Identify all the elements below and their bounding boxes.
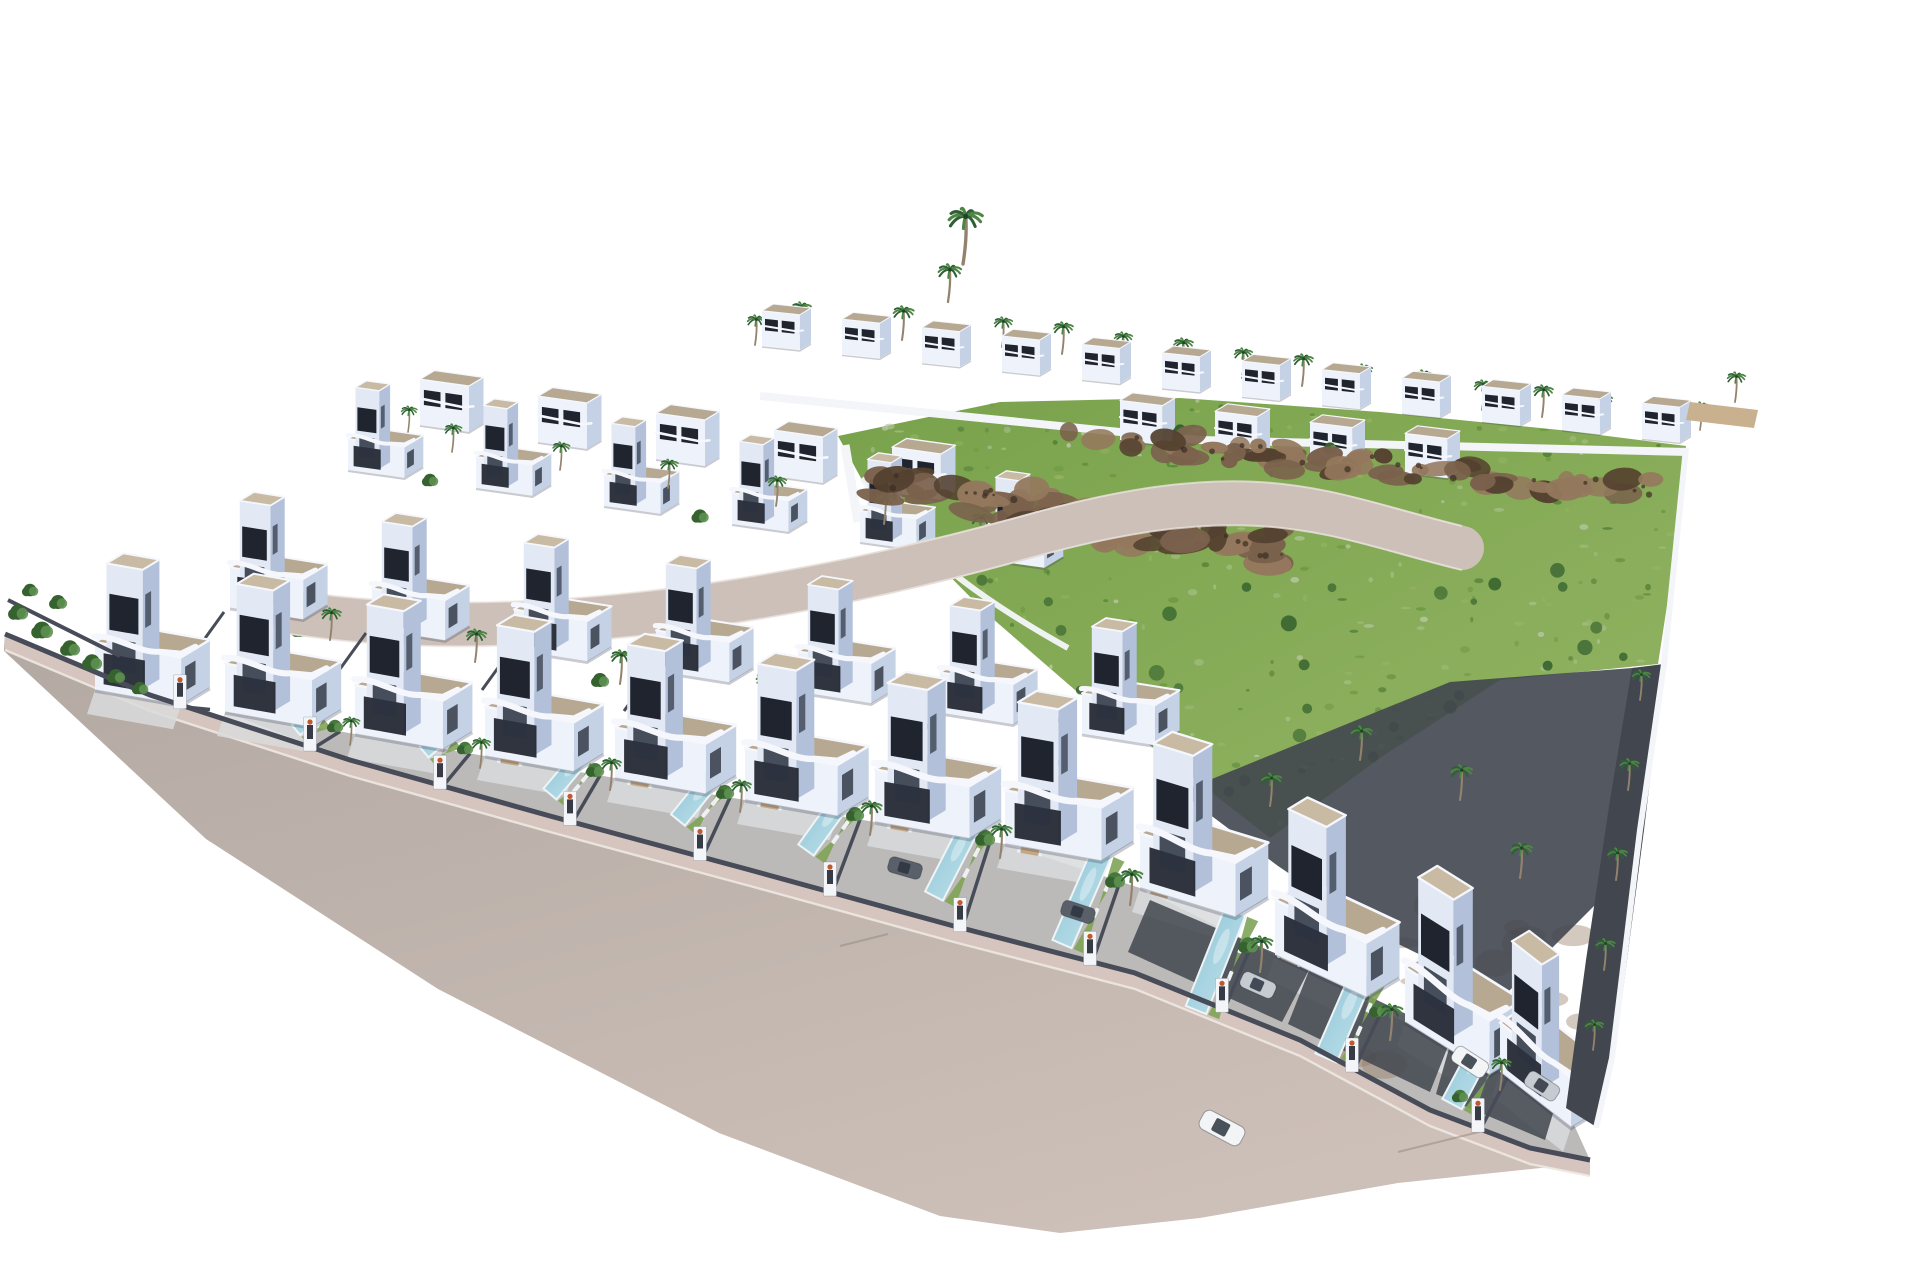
tower-side-window xyxy=(273,524,278,555)
tower-window xyxy=(1094,652,1119,686)
grass-speckle xyxy=(1654,528,1658,532)
shrub xyxy=(327,720,343,733)
shrub-foliage xyxy=(17,608,28,619)
palm-tree xyxy=(445,424,462,452)
palm-crown xyxy=(610,761,613,764)
palm-crown xyxy=(480,741,483,744)
palm-crown xyxy=(948,268,952,272)
gate-pillar xyxy=(694,827,707,861)
rock-speckle xyxy=(1299,460,1305,466)
grass-speckle xyxy=(1213,584,1216,589)
tower-side-window xyxy=(637,441,641,465)
shrub-foliage xyxy=(599,676,609,686)
palm-crown xyxy=(1302,357,1305,360)
tower-side-window xyxy=(537,654,543,692)
grass-speckle xyxy=(1539,429,1548,431)
grass-speckle xyxy=(1049,665,1052,670)
hillside-shrub xyxy=(1543,661,1553,671)
hillside-shrub xyxy=(1149,665,1165,681)
tower-side-window xyxy=(841,608,846,639)
grass-speckle xyxy=(1246,689,1250,692)
rock-speckle xyxy=(1646,492,1652,498)
palm-crown xyxy=(1520,846,1523,849)
grass-speckle xyxy=(1020,607,1025,614)
shrub-foliage xyxy=(91,658,102,669)
villa-window xyxy=(925,336,938,349)
grass-speckle xyxy=(1419,509,1422,513)
rock-speckle xyxy=(1010,496,1017,503)
gate-planter-flowers xyxy=(827,864,832,869)
grass-speckle xyxy=(1470,617,1473,623)
rock-speckle xyxy=(1395,462,1400,467)
tower-window xyxy=(613,443,632,469)
rock-speckle xyxy=(1641,485,1645,489)
gate-door xyxy=(567,799,573,813)
palm-crown xyxy=(1062,325,1065,328)
gate-door xyxy=(827,870,833,884)
grass-speckle xyxy=(1195,410,1200,413)
tower-window xyxy=(891,716,923,761)
grass-speckle xyxy=(1387,674,1396,679)
tower-side-window xyxy=(699,587,704,618)
grass-speckle xyxy=(1569,436,1576,442)
palm-crown xyxy=(560,445,563,448)
palm-crown xyxy=(1000,827,1003,830)
hillside-shrub xyxy=(1281,615,1297,631)
grass-speckle xyxy=(1047,571,1050,576)
rock-speckle xyxy=(1420,466,1423,469)
tower-window xyxy=(1021,736,1053,782)
rock-speckle xyxy=(988,488,993,493)
grass-speckle xyxy=(1350,691,1359,695)
palm-tree xyxy=(939,264,962,302)
grass-speckle xyxy=(1604,613,1610,620)
tower-side-window xyxy=(930,713,936,754)
tower-side-wall xyxy=(507,402,518,487)
grass-speckle xyxy=(1285,716,1290,721)
villa-window xyxy=(1085,353,1098,366)
palm-tree xyxy=(949,208,982,264)
hillside-shrub xyxy=(1619,652,1628,661)
gate-pillar xyxy=(1216,978,1229,1012)
tower-side-window xyxy=(1125,650,1130,681)
grass-speckle xyxy=(1001,448,1006,451)
tower-window xyxy=(242,526,267,560)
palm-crown xyxy=(755,318,758,321)
grass-speckle xyxy=(1653,566,1662,569)
grass-speckle xyxy=(963,466,973,471)
palm-crown xyxy=(870,804,873,807)
tower-side-window xyxy=(1061,733,1068,774)
hillside-shrub xyxy=(1328,583,1337,592)
gate-planter-flowers xyxy=(1219,981,1224,986)
gate-planter-flowers xyxy=(697,829,702,834)
shrub-foliage xyxy=(984,834,995,845)
grass-speckle xyxy=(1461,501,1468,506)
grass-speckle xyxy=(1344,680,1352,684)
grass-speckle xyxy=(995,578,998,582)
tower-side-wall xyxy=(1454,888,1473,1036)
grass-speckle xyxy=(1337,545,1347,549)
grass-speckle xyxy=(1514,621,1524,626)
grass-speckle xyxy=(1390,571,1394,577)
rock-speckle xyxy=(1370,454,1375,459)
grass-speckle xyxy=(1468,586,1473,592)
grass-speckle xyxy=(1321,543,1327,547)
rock-speckle xyxy=(982,493,987,498)
grass-speckle xyxy=(1529,602,1537,606)
tower-side-wall xyxy=(635,420,646,505)
grass-speckle xyxy=(1254,755,1259,757)
grass-speckle xyxy=(1457,485,1463,489)
grass-speckle xyxy=(1060,595,1070,599)
rock-speckle xyxy=(889,485,896,492)
grass-speckle xyxy=(1368,577,1373,582)
grass-speckle xyxy=(1645,584,1651,591)
grass-speckle xyxy=(1565,508,1569,512)
rock-speckle xyxy=(1344,466,1350,472)
grass-speckle xyxy=(1168,597,1178,603)
shrub-foliage xyxy=(29,587,38,596)
villa-window xyxy=(1565,403,1578,416)
grass-speckle xyxy=(987,446,992,449)
villa-window xyxy=(765,319,778,332)
grass-speckle xyxy=(1582,622,1588,626)
shrub-foliage xyxy=(41,626,53,638)
grass-speckle xyxy=(1382,662,1391,666)
grass-speckle xyxy=(1420,617,1428,622)
gate-door xyxy=(957,906,963,920)
gate-pillar xyxy=(954,898,967,932)
rock-speckle xyxy=(1221,457,1225,461)
gate-planter-flowers xyxy=(567,794,572,799)
palm-crown xyxy=(408,409,410,411)
rock xyxy=(1404,473,1422,484)
tower-window xyxy=(240,615,269,656)
hillside-shrub xyxy=(1044,597,1053,606)
grass-speckle xyxy=(1579,544,1589,548)
shrub xyxy=(457,742,473,755)
villa xyxy=(1562,388,1611,435)
palm-crown xyxy=(1616,851,1619,854)
tower-side-window xyxy=(668,674,674,713)
palm-tree xyxy=(402,406,417,432)
grass-speckle xyxy=(985,466,990,469)
grass-speckle xyxy=(1635,595,1644,599)
villa xyxy=(774,421,838,484)
grass-speckle xyxy=(1345,544,1350,548)
palm-crown xyxy=(902,309,905,312)
shrub-foliage xyxy=(334,723,343,732)
shrub xyxy=(49,595,67,609)
rock-speckle xyxy=(1257,553,1262,558)
villa xyxy=(1642,396,1691,443)
grass-speckle xyxy=(1461,599,1469,603)
grass-speckle xyxy=(1344,672,1353,675)
grass-speckle xyxy=(1053,440,1058,445)
palm-crown xyxy=(1542,388,1545,391)
tower-side-window xyxy=(415,545,420,576)
grass-speckle xyxy=(1237,527,1245,530)
villa-window xyxy=(1245,369,1258,382)
grass-speckle xyxy=(1460,646,1470,653)
grass-speckle xyxy=(1398,562,1402,566)
grass-speckle xyxy=(1574,660,1578,664)
grass-speckle xyxy=(1109,474,1116,478)
gate-planter-flowers xyxy=(1475,1101,1480,1106)
shrub xyxy=(60,640,80,655)
palm-crown xyxy=(668,462,671,465)
grass-speckle xyxy=(1659,547,1666,549)
grass-speckle xyxy=(1441,665,1449,670)
grass-speckle xyxy=(1054,475,1064,479)
grass-speckle xyxy=(1108,577,1111,580)
hillside-shrub xyxy=(1293,729,1306,742)
gate-pillar xyxy=(1084,931,1097,965)
tower-window xyxy=(761,697,792,741)
grass-speckle xyxy=(1378,687,1386,692)
grass-speckle xyxy=(1297,655,1303,660)
villa xyxy=(1162,346,1211,393)
palm-crown xyxy=(1735,375,1738,378)
grass-speckle xyxy=(957,427,964,432)
tower-window xyxy=(384,547,409,581)
tower-side-window xyxy=(381,405,385,429)
grass-speckle xyxy=(1114,599,1119,603)
grass-speckle xyxy=(1367,418,1373,422)
villa-window xyxy=(1005,344,1018,357)
grass-speckle xyxy=(985,428,989,433)
gate-door xyxy=(1087,939,1093,953)
hillside-shrub xyxy=(1302,704,1312,714)
villa xyxy=(1082,338,1131,385)
hillside-shrub xyxy=(976,575,987,586)
shrub-foliage xyxy=(69,644,80,655)
grass-speckle xyxy=(1409,587,1416,590)
gate-pillar xyxy=(564,791,577,825)
palm-tree xyxy=(1054,322,1073,354)
villa xyxy=(1482,380,1531,427)
grass-speckle xyxy=(1474,578,1483,583)
gate-door xyxy=(1349,1046,1355,1060)
grass-speckle xyxy=(1053,466,1063,472)
grass-speckle xyxy=(1364,624,1374,628)
shrub xyxy=(422,474,438,487)
tower-window xyxy=(109,594,138,635)
palm-crown xyxy=(475,633,478,636)
palm-tree xyxy=(553,442,570,470)
grass-speckle xyxy=(1545,603,1552,606)
grass-speckle xyxy=(1472,596,1475,599)
grass-speckle xyxy=(1416,607,1426,610)
hillside-shrub xyxy=(1162,606,1177,621)
villa-window xyxy=(845,327,858,340)
grass-speckle xyxy=(1441,500,1445,503)
hillside-shrub xyxy=(1558,582,1568,592)
tower-side-wall xyxy=(1327,815,1346,965)
gate-pillar xyxy=(1472,1098,1485,1132)
gate-planter-flowers xyxy=(1087,934,1092,939)
rock-speckle xyxy=(1134,435,1139,440)
villa-window xyxy=(1645,411,1658,424)
gate-planter-flowers xyxy=(437,758,442,763)
grass-speckle xyxy=(1004,427,1011,433)
palm-tree xyxy=(1534,385,1553,417)
villa xyxy=(922,321,971,368)
tower-window xyxy=(526,568,551,602)
tower-side-window xyxy=(1196,780,1203,822)
tower-window xyxy=(630,677,661,720)
grass-speckle xyxy=(1202,562,1210,567)
shrub xyxy=(22,584,38,597)
grass-speckle xyxy=(1597,639,1600,644)
palm-crown xyxy=(1460,768,1463,771)
grass-speckle xyxy=(1349,630,1358,633)
grass-speckle xyxy=(1591,578,1597,584)
palm-crown xyxy=(963,214,968,219)
grass-speckle xyxy=(1190,408,1195,411)
hillside-shrub xyxy=(1590,622,1602,634)
gate-door xyxy=(697,835,703,849)
grass-speckle xyxy=(1290,577,1299,583)
villa xyxy=(762,304,811,351)
render-canvas: Aerial 3D render of a modern white villa… xyxy=(0,0,1920,1280)
hillside-shrub xyxy=(1550,563,1565,578)
grass-speckle xyxy=(1568,656,1573,661)
grass-speckle xyxy=(884,424,894,430)
shrub-foliage xyxy=(1459,1093,1468,1102)
grass-speckle xyxy=(1232,762,1241,767)
tower-side-window xyxy=(509,423,513,447)
grass-speckle xyxy=(1195,399,1199,403)
grass-speckle xyxy=(1581,439,1588,444)
grass-speckle xyxy=(1554,637,1558,642)
grass-speckle xyxy=(1594,552,1598,557)
gate-door xyxy=(1219,986,1225,1000)
palm-crown xyxy=(1640,673,1643,676)
site-aerial-render: Aerial 3D render of a modern white villa… xyxy=(0,0,1920,1280)
rock-speckle xyxy=(1243,541,1249,547)
grass-speckle xyxy=(894,430,904,432)
rock-speckle xyxy=(1280,553,1283,556)
gate-door xyxy=(437,763,443,777)
gate-planter-flowers xyxy=(957,900,962,905)
villa-window xyxy=(1325,378,1338,391)
villa-window xyxy=(1165,361,1178,374)
grass-speckle xyxy=(1188,589,1198,595)
tower-window xyxy=(668,589,693,623)
rock-speckle xyxy=(965,491,968,494)
rock-speckle xyxy=(1224,533,1229,538)
grass-speckle xyxy=(1656,444,1661,447)
shrub-foliage xyxy=(699,512,709,522)
tower-side-window xyxy=(557,566,562,597)
grass-speckle xyxy=(1294,536,1305,541)
grass-speckle xyxy=(1010,623,1014,627)
shrub-foliage xyxy=(57,598,67,608)
rock-speckle xyxy=(1240,443,1245,448)
grass-speckle xyxy=(1142,624,1145,630)
grass-speckle xyxy=(1287,425,1292,430)
palm-crown xyxy=(740,783,743,786)
tower-window xyxy=(810,610,835,644)
gate-pillar xyxy=(434,755,447,789)
villa xyxy=(656,404,720,467)
grass-speckle xyxy=(1494,508,1504,512)
grass-speckle xyxy=(990,403,995,406)
gate-planter-flowers xyxy=(1349,1040,1354,1045)
villa xyxy=(1242,354,1291,401)
rock-speckle xyxy=(1209,448,1215,454)
grass-speckle xyxy=(1636,660,1645,663)
palm-crown xyxy=(1390,1008,1393,1011)
gate-planter-flowers xyxy=(307,719,312,724)
gate-pillar xyxy=(304,717,317,751)
grass-speckle xyxy=(973,448,979,452)
tower-window xyxy=(741,461,760,487)
palm-tree xyxy=(1294,354,1313,386)
palm-crown xyxy=(1270,777,1273,780)
tower-side-window xyxy=(765,459,769,483)
tower-window xyxy=(952,631,977,665)
grass-speckle xyxy=(1615,558,1625,562)
shrub xyxy=(691,509,708,522)
shrub xyxy=(591,673,609,687)
grass-speckle xyxy=(1273,593,1281,598)
grass-speckle xyxy=(1168,465,1178,467)
tower-side-window xyxy=(276,612,282,650)
tower-window xyxy=(485,425,504,451)
palm-crown xyxy=(1260,940,1263,943)
palm-tree xyxy=(894,306,914,340)
grass-speckle xyxy=(1190,733,1194,736)
palm-crown xyxy=(1242,351,1245,354)
grass-speckle xyxy=(1355,656,1365,659)
rock-speckle xyxy=(973,491,977,495)
palm-crown xyxy=(1604,942,1607,945)
gate-pillar xyxy=(1346,1038,1359,1072)
grass-speckle xyxy=(1357,621,1364,624)
hillside-shrub xyxy=(1242,582,1252,592)
palm-crown xyxy=(1360,729,1363,732)
grass-speckle xyxy=(1464,673,1471,676)
shrub xyxy=(31,622,53,639)
tower-window xyxy=(370,636,400,678)
palm-crown xyxy=(350,720,353,723)
villa xyxy=(842,312,891,359)
palm-crown xyxy=(1500,1061,1503,1064)
hillside-shrub xyxy=(1299,659,1310,670)
palm-crown xyxy=(1182,341,1185,344)
grass-speckle xyxy=(1417,626,1425,630)
grass-speckle xyxy=(1643,593,1651,595)
grass-speckle xyxy=(1184,705,1194,709)
palm-crown xyxy=(330,611,333,614)
palm-crown xyxy=(620,653,623,656)
grass-speckle xyxy=(1310,413,1315,416)
grass-speckle xyxy=(1401,607,1411,609)
villa xyxy=(347,381,423,479)
grass-speckle xyxy=(871,447,875,453)
tower-side-window xyxy=(983,629,988,660)
grass-speckle xyxy=(1514,641,1519,647)
grass-speckle xyxy=(1226,564,1232,569)
grass-speckle xyxy=(1301,566,1310,569)
grass-speckle xyxy=(1579,581,1583,585)
corner-deck xyxy=(1686,402,1758,428)
grass-speckle xyxy=(1498,457,1508,464)
grass-speckle xyxy=(1066,443,1070,448)
